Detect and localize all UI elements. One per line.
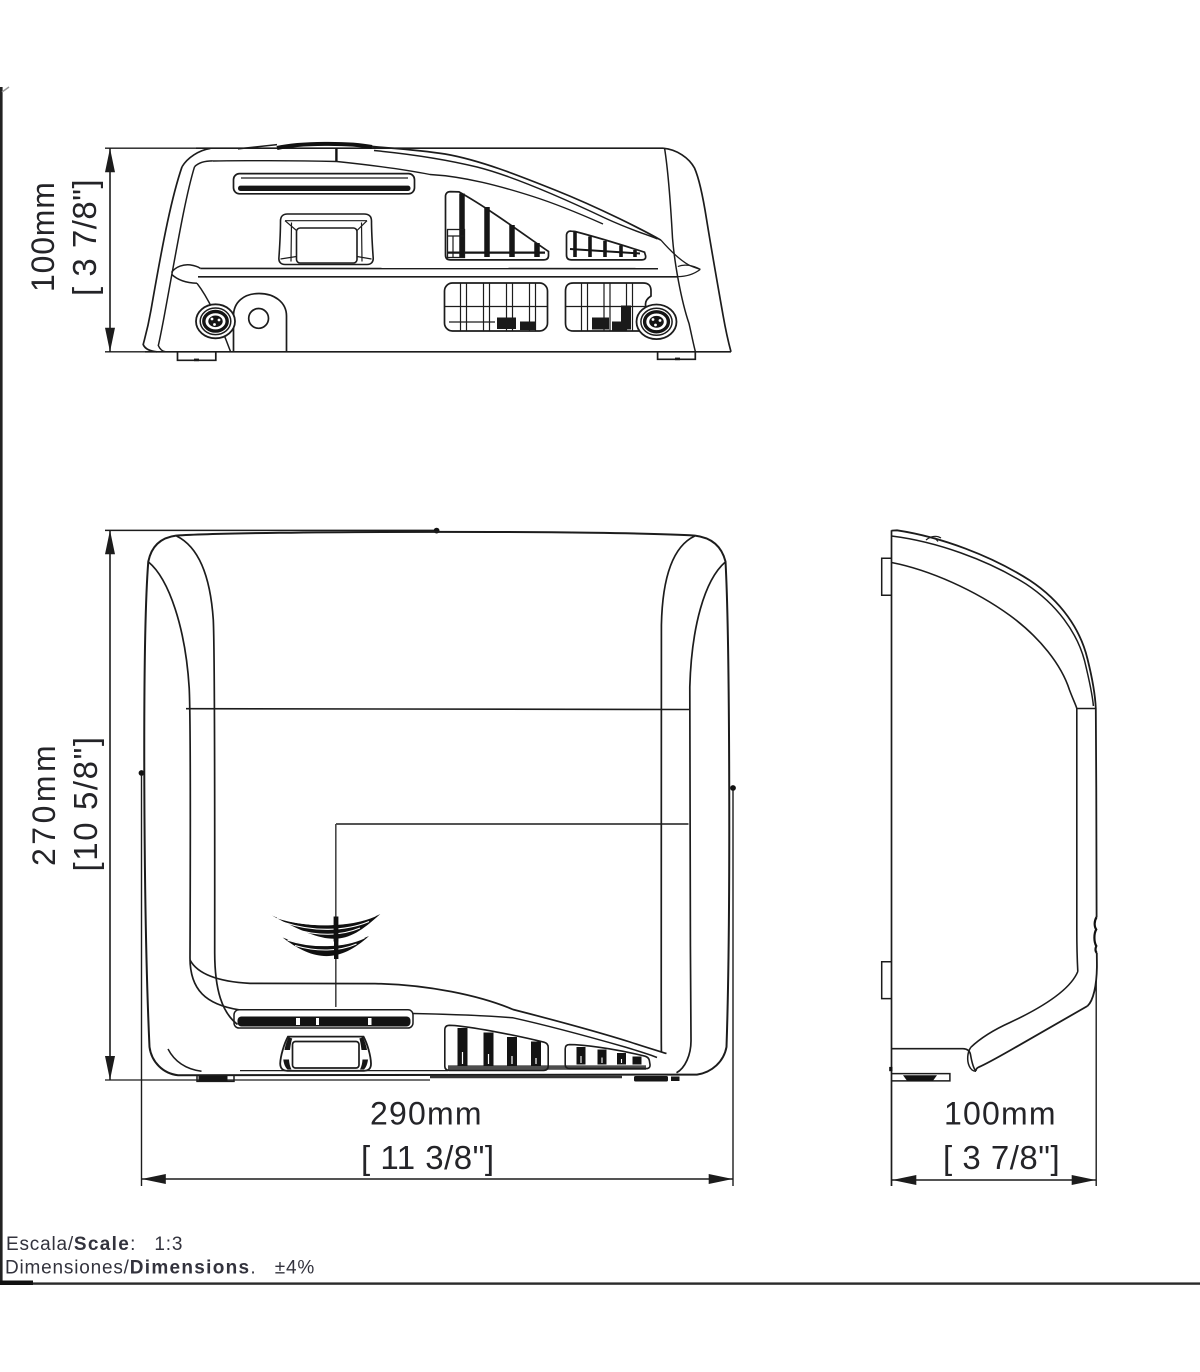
svg-text:[ 11 3/8"]: [ 11 3/8"] bbox=[361, 1139, 495, 1176]
svg-text:100mm: 100mm bbox=[25, 181, 61, 292]
svg-text:[ 3 7/8"]: [ 3 7/8"] bbox=[943, 1139, 1060, 1176]
svg-text:100mm: 100mm bbox=[944, 1096, 1057, 1132]
svg-text:Escala/Scale: 1:3: Escala/Scale: 1:3 bbox=[6, 1234, 183, 1255]
svg-text:270mm: 270mm bbox=[26, 742, 62, 866]
svg-text:290mm: 290mm bbox=[370, 1096, 483, 1132]
svg-text:[10 5/8"]: [10 5/8"] bbox=[67, 735, 104, 871]
svg-text:Dimensiones/Dimensions. ±4%: Dimensiones/Dimensions. ±4% bbox=[5, 1258, 315, 1279]
svg-text:[ 3 7/8"]: [ 3 7/8"] bbox=[66, 179, 103, 296]
